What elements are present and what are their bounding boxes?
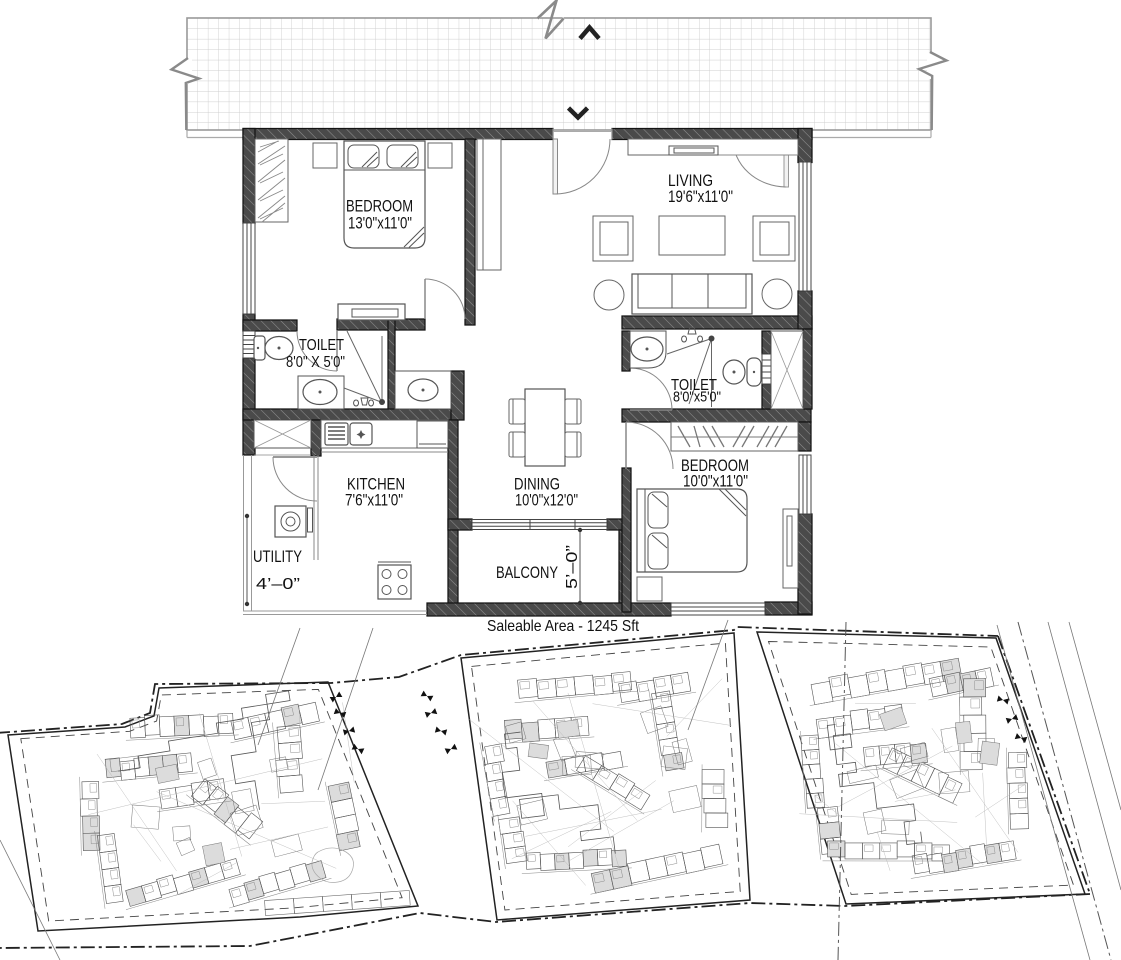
svg-text:BEDROOM: BEDROOM xyxy=(346,197,413,216)
svg-text:UTILITY: UTILITY xyxy=(253,548,302,566)
svg-text:Saleable Area - 1245 Sft: Saleable Area - 1245 Sft xyxy=(487,618,639,635)
svg-text:8'0" X 5'0": 8'0" X 5'0" xyxy=(286,354,345,371)
svg-text:10'0"x11'0": 10'0"x11'0" xyxy=(683,473,748,491)
svg-text:8'0"x5'0": 8'0"x5'0" xyxy=(673,389,721,406)
svg-text:7'6"x11'0": 7'6"x11'0" xyxy=(345,492,403,510)
svg-text:5’–0”: 5’–0” xyxy=(564,545,581,589)
svg-text:TOILET: TOILET xyxy=(299,337,344,354)
svg-text:BALCONY: BALCONY xyxy=(496,563,558,582)
svg-text:19'6"x11'0": 19'6"x11'0" xyxy=(668,188,733,206)
svg-text:10'0"x12'0": 10'0"x12'0" xyxy=(515,492,578,510)
svg-text:13'0"x11'0": 13'0"x11'0" xyxy=(348,215,412,233)
svg-text:4’–0”: 4’–0” xyxy=(256,576,300,593)
